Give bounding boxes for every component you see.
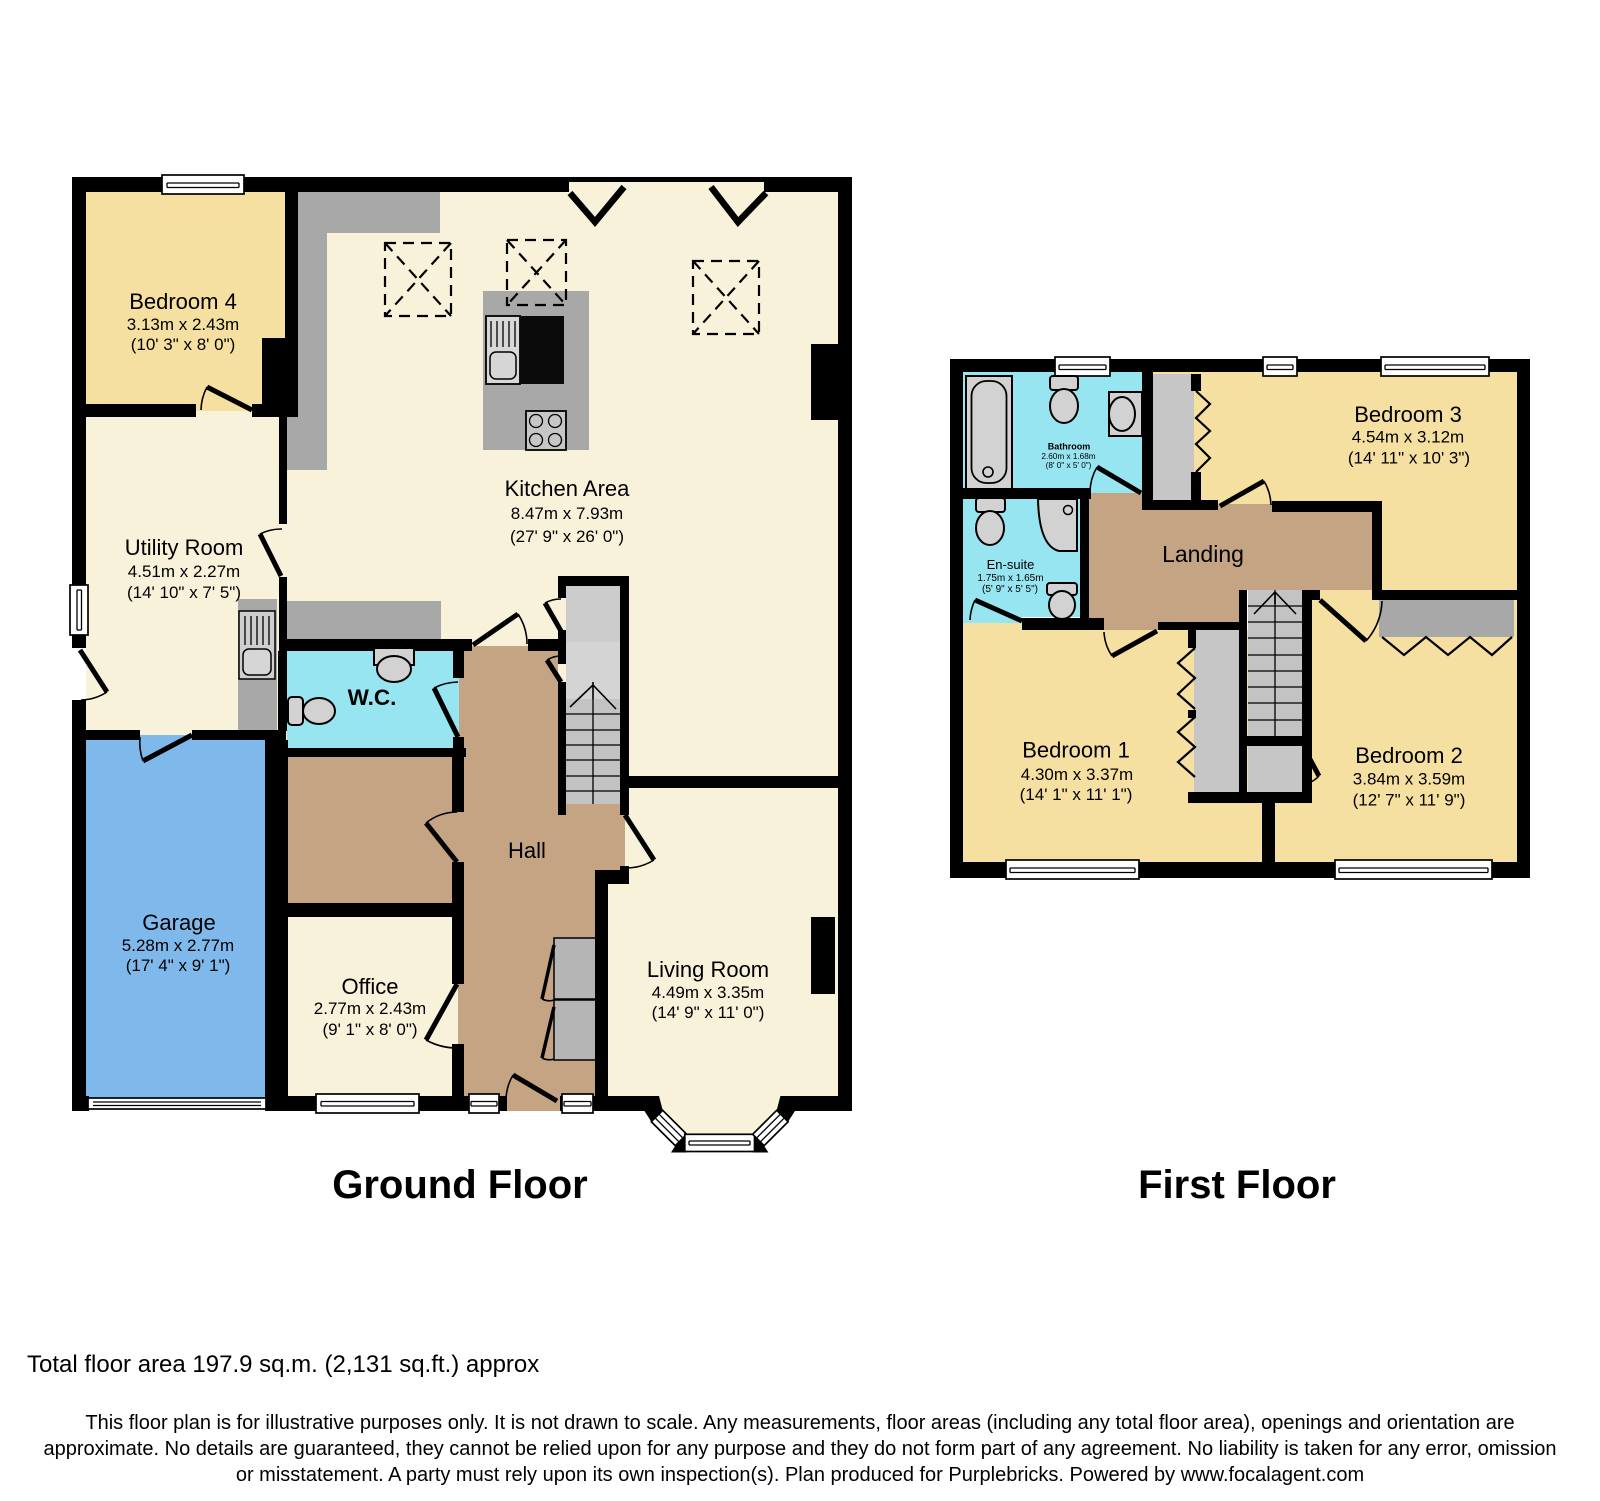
svg-text:Kitchen Area: Kitchen Area (505, 476, 631, 501)
svg-text:3.13m x 2.43m: 3.13m x 2.43m (127, 315, 239, 334)
svg-text:Living Room: Living Room (647, 957, 769, 982)
svg-text:5.28m x 2.77m: 5.28m x 2.77m (122, 936, 234, 955)
svg-text:3.84m x 3.59m: 3.84m x 3.59m (1353, 770, 1465, 789)
svg-text:Bedroom 1: Bedroom 1 (1022, 738, 1130, 763)
svg-text:4.30m x 3.37m: 4.30m x 3.37m (1021, 765, 1133, 784)
svg-text:or misstatement. A party must: or misstatement. A party must rely upon … (236, 1464, 1364, 1486)
svg-text:Bedroom 2: Bedroom 2 (1355, 743, 1463, 768)
svg-text:4.49m x 3.35m: 4.49m x 3.35m (652, 983, 764, 1002)
svg-text:(14' 1" x 11' 1"): (14' 1" x 11' 1") (1020, 785, 1133, 804)
svg-text:Utility Room: Utility Room (125, 535, 244, 560)
svg-text:Hall: Hall (508, 838, 546, 863)
svg-text:(27' 9" x 26' 0"): (27' 9" x 26' 0") (510, 527, 624, 546)
svg-text:W.C.: W.C. (348, 685, 397, 710)
svg-text:(12' 7" x 11' 9"): (12' 7" x 11' 9") (1353, 791, 1466, 810)
svg-text:approximate. No details are gu: approximate. No details are guaranteed, … (43, 1438, 1556, 1460)
svg-text:2.60m x 1.68m: 2.60m x 1.68m (1041, 452, 1095, 461)
svg-text:(14' 9" x 11' 0"): (14' 9" x 11' 0") (652, 1003, 765, 1022)
svg-text:Total floor area 197.9 sq.m. (: Total floor area 197.9 sq.m. (2,131 sq.f… (27, 1351, 539, 1378)
svg-text:(14' 11" x 10' 3"): (14' 11" x 10' 3") (1348, 449, 1470, 468)
svg-text:(14' 10" x 7' 5"): (14' 10" x 7' 5") (127, 583, 241, 602)
svg-text:En-suite: En-suite (987, 557, 1035, 572)
svg-text:This floor plan is for illustr: This floor plan is for illustrative purp… (85, 1412, 1514, 1434)
svg-text:First Floor: First Floor (1138, 1163, 1336, 1207)
svg-text:1.75m x 1.65m: 1.75m x 1.65m (977, 573, 1043, 584)
svg-text:2.77m x 2.43m: 2.77m x 2.43m (314, 999, 426, 1018)
svg-text:Office: Office (341, 974, 398, 999)
svg-text:(5' 9" x 5' 5"): (5' 9" x 5' 5") (982, 584, 1038, 595)
svg-text:4.54m x 3.12m: 4.54m x 3.12m (1352, 428, 1464, 447)
svg-text:4.51m x 2.27m: 4.51m x 2.27m (128, 562, 240, 581)
svg-text:(9' 1" x 8' 0"): (9' 1" x 8' 0") (322, 1020, 417, 1039)
svg-text:(17' 4" x 9' 1"): (17' 4" x 9' 1") (126, 956, 231, 975)
svg-text:(8' 0" x 5' 0"): (8' 0" x 5' 0") (1046, 461, 1092, 470)
svg-text:Bathroom: Bathroom (1048, 442, 1091, 452)
svg-text:(10' 3" x 8' 0"): (10' 3" x 8' 0") (131, 335, 236, 354)
svg-text:Bedroom 3: Bedroom 3 (1354, 402, 1462, 427)
svg-text:Ground Floor: Ground Floor (332, 1163, 588, 1207)
svg-text:Garage: Garage (142, 910, 215, 935)
svg-text:8.47m x 7.93m: 8.47m x 7.93m (511, 504, 623, 523)
svg-text:Landing: Landing (1162, 541, 1244, 567)
svg-text:Bedroom 4: Bedroom 4 (129, 289, 237, 314)
